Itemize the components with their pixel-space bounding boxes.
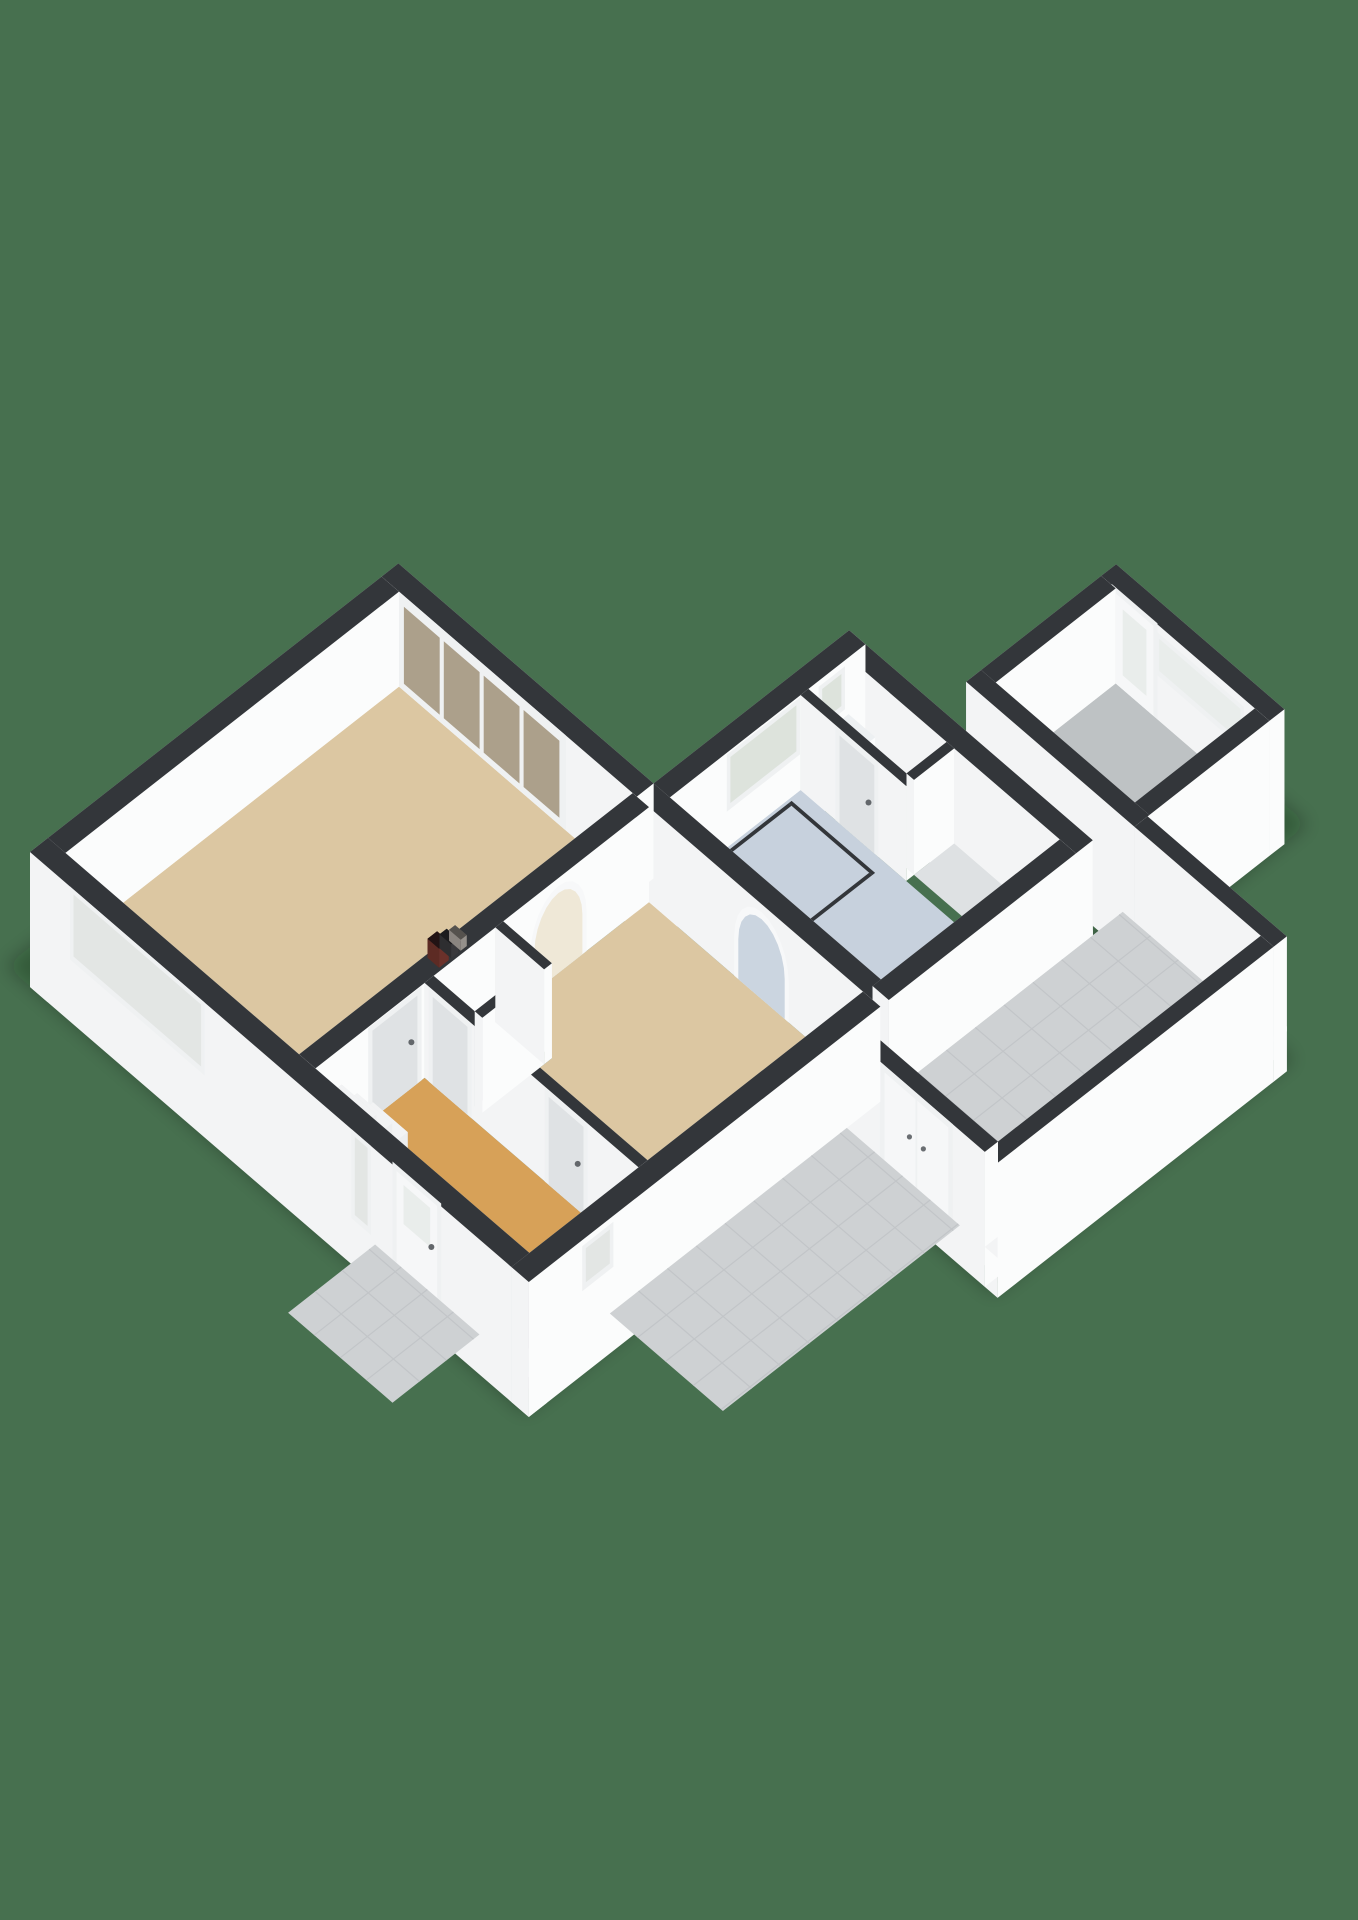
garage-back-wall-east-face — [1269, 709, 1284, 816]
living-room-door-handle — [408, 1039, 414, 1045]
toilet-door-handle — [866, 799, 872, 805]
meter-closet-e-wall-south-face — [475, 1011, 483, 1113]
floorplan-stage — [0, 0, 1358, 1920]
garden-wall-gate-east-face — [985, 1142, 998, 1247]
meter-closet-n-wall-east-face — [544, 963, 552, 1064]
floorplan-3d-canvas — [0, 0, 1358, 1920]
front-door-handle — [428, 1244, 434, 1250]
garden-gate-left-handle — [907, 1134, 912, 1139]
door-sidelight-window-glass — [355, 1137, 368, 1226]
garden-gate-right-handle — [921, 1146, 926, 1151]
house-se-facade-south-face — [511, 1267, 528, 1377]
toilet-partition-south-face — [907, 773, 915, 875]
wing-ne-wall-east-face — [1076, 840, 1093, 948]
dining-room-door-handle — [575, 1161, 581, 1167]
garden-wall-ne-east-face — [1274, 936, 1287, 1041]
